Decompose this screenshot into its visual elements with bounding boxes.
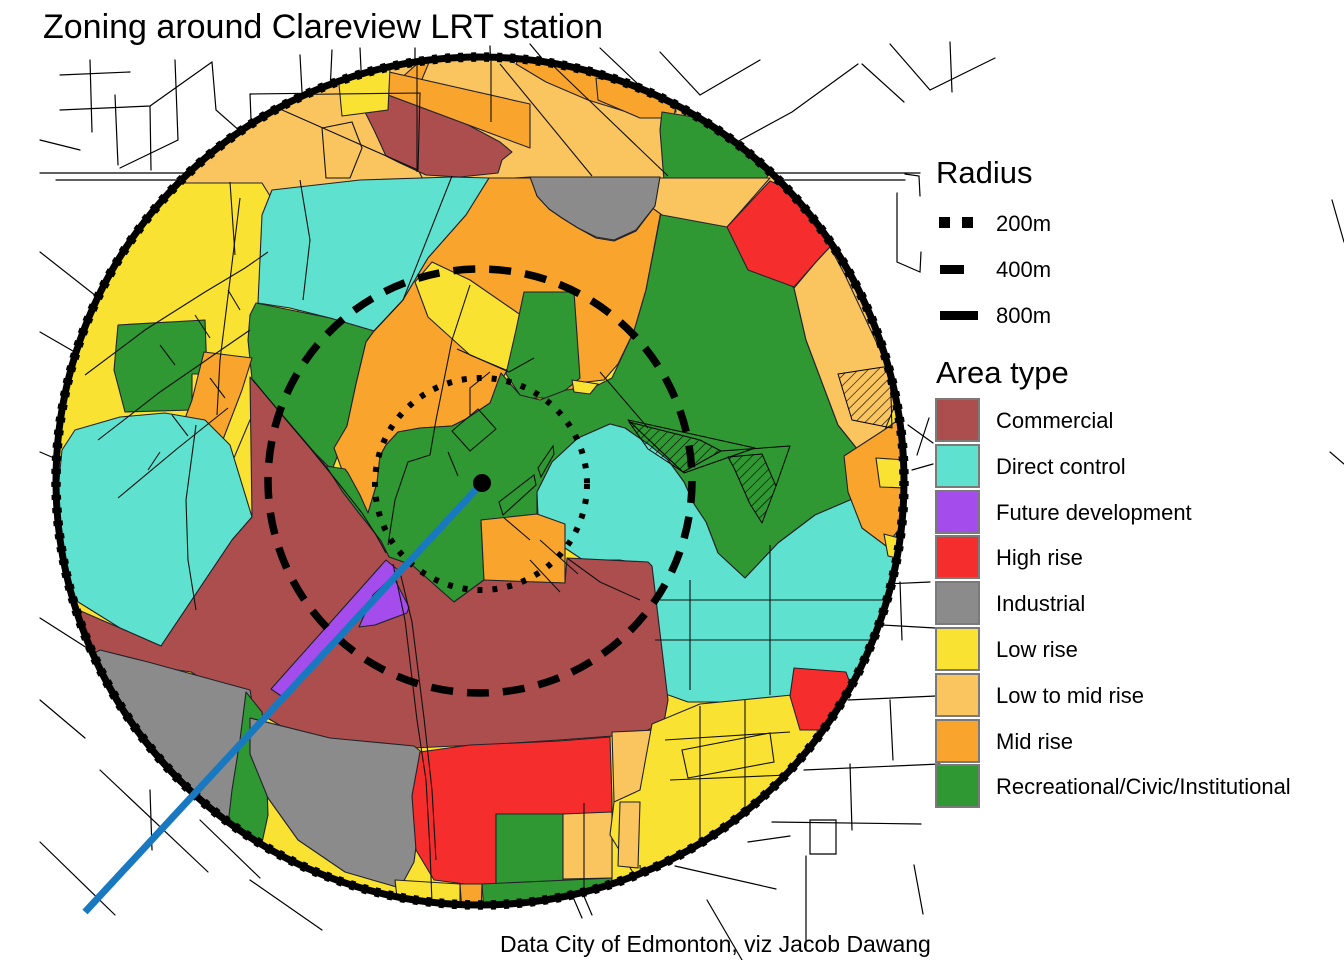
svg-text:Data City of Edmonton, viz Jac: Data City of Edmonton, viz Jacob Dawang (500, 931, 931, 957)
svg-text:800m: 800m (996, 303, 1051, 328)
svg-text:Direct control: Direct control (996, 454, 1126, 479)
svg-text:Radius: Radius (936, 155, 1033, 190)
svg-text:Future development: Future development (996, 500, 1192, 525)
svg-text:Industrial: Industrial (996, 591, 1085, 616)
svg-text:Area type: Area type (936, 355, 1069, 390)
svg-text:High rise: High rise (996, 545, 1083, 570)
svg-text:Mid rise: Mid rise (996, 729, 1073, 754)
svg-text:Commercial: Commercial (996, 408, 1113, 433)
svg-text:Zoning around Clareview LRT st: Zoning around Clareview LRT station (43, 8, 603, 46)
svg-text:Low to mid rise: Low to mid rise (996, 683, 1144, 708)
svg-text:400m: 400m (996, 257, 1051, 282)
svg-text:Low rise: Low rise (996, 637, 1078, 662)
svg-text:Recreational/Civic/Institution: Recreational/Civic/Institutional (996, 774, 1291, 799)
svg-text:200m: 200m (996, 211, 1051, 236)
